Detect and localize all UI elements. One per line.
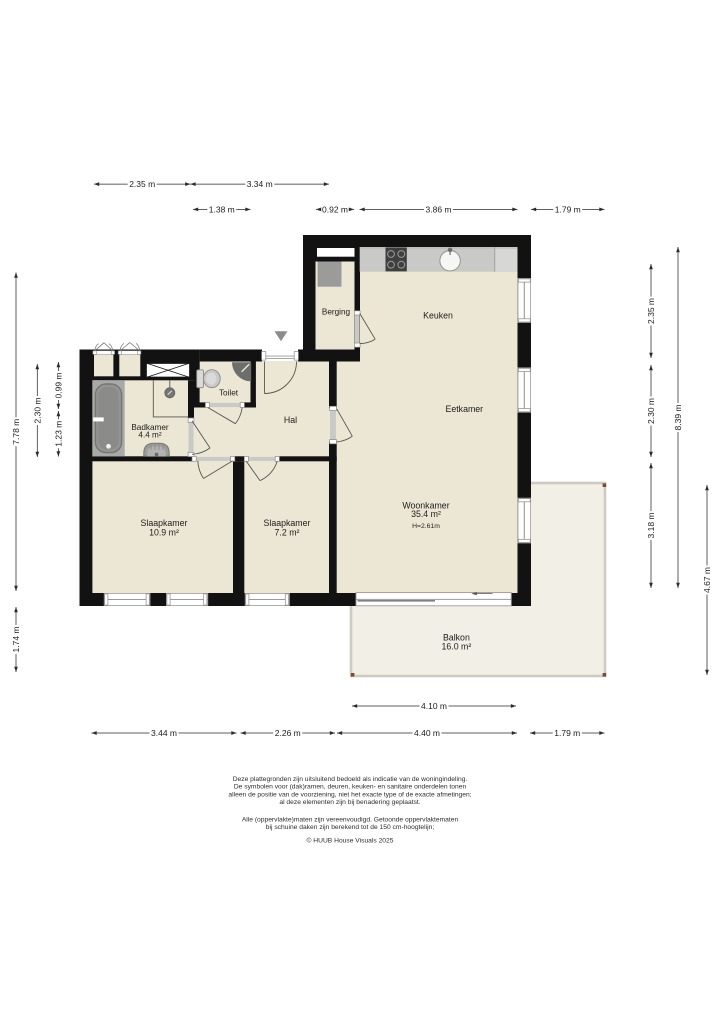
svg-text:Deze plattegronden zijn uitslu: Deze plattegronden zijn uitsluitend bedo… — [233, 776, 468, 783]
svg-text:4.67 m: 4.67 m — [702, 567, 712, 593]
svg-text:3.18 m: 3.18 m — [646, 513, 656, 539]
svg-text:2.30 m: 2.30 m — [32, 398, 42, 424]
svg-text:1.23 m: 1.23 m — [53, 421, 63, 447]
svg-text:0.99 m: 0.99 m — [53, 373, 63, 399]
svg-text:7.2 m²: 7.2 m² — [275, 528, 300, 538]
svg-text:H=2.61m: H=2.61m — [412, 523, 440, 530]
svg-text:16.0 m²: 16.0 m² — [441, 642, 471, 652]
svg-text:al deze elementen zijn bij ben: al deze elementen zijn bij benadering ge… — [279, 799, 420, 806]
svg-text:© HUUB House Visuals 2025: © HUUB House Visuals 2025 — [307, 836, 394, 844]
svg-text:8.39 m: 8.39 m — [673, 405, 683, 431]
svg-text:Alle (oppervlakte)maten zijn v: Alle (oppervlakte)maten zijn vereenvoudi… — [242, 816, 459, 823]
svg-text:2.26 m: 2.26 m — [275, 728, 301, 738]
svg-text:1.79 m: 1.79 m — [555, 204, 581, 214]
svg-text:Hal: Hal — [284, 415, 297, 425]
svg-text:Slaapkamer: Slaapkamer — [141, 518, 188, 528]
svg-text:1.74 m: 1.74 m — [11, 627, 21, 653]
svg-text:3.86 m: 3.86 m — [426, 204, 452, 214]
svg-text:Slaapkamer: Slaapkamer — [264, 518, 311, 528]
svg-text:10.9 m²: 10.9 m² — [149, 528, 179, 538]
svg-text:3.34 m: 3.34 m — [247, 179, 273, 189]
svg-text:7.78 m: 7.78 m — [11, 419, 21, 445]
svg-text:4.40 m: 4.40 m — [414, 728, 440, 738]
svg-text:4.10 m: 4.10 m — [421, 701, 447, 711]
svg-text:4.4 m²: 4.4 m² — [138, 430, 161, 439]
svg-text:3.44 m: 3.44 m — [151, 728, 177, 738]
svg-text:0.92 m: 0.92 m — [322, 204, 348, 214]
svg-text:35.4 m²: 35.4 m² — [411, 509, 441, 519]
svg-text:Berging: Berging — [322, 308, 351, 317]
svg-text:2.30 m: 2.30 m — [646, 398, 656, 424]
svg-text:De symbolen voor (dak)ramen, d: De symbolen voor (dak)ramen, deuren, keu… — [234, 784, 467, 791]
svg-text:2.35 m: 2.35 m — [129, 179, 155, 189]
svg-text:2.35 m: 2.35 m — [646, 298, 656, 324]
svg-text:Toilet: Toilet — [219, 388, 239, 397]
svg-text:bij schuine daken zijn bereken: bij schuine daken zijn berekend tot de 1… — [266, 824, 435, 831]
svg-text:alleen de positie van de voorz: alleen de positie van de voorziening, ni… — [228, 791, 471, 798]
svg-text:1.79 m: 1.79 m — [554, 728, 580, 738]
svg-text:Keuken: Keuken — [423, 311, 453, 321]
svg-text:Eetkamer: Eetkamer — [445, 404, 483, 414]
svg-text:1.38 m: 1.38 m — [209, 204, 235, 214]
